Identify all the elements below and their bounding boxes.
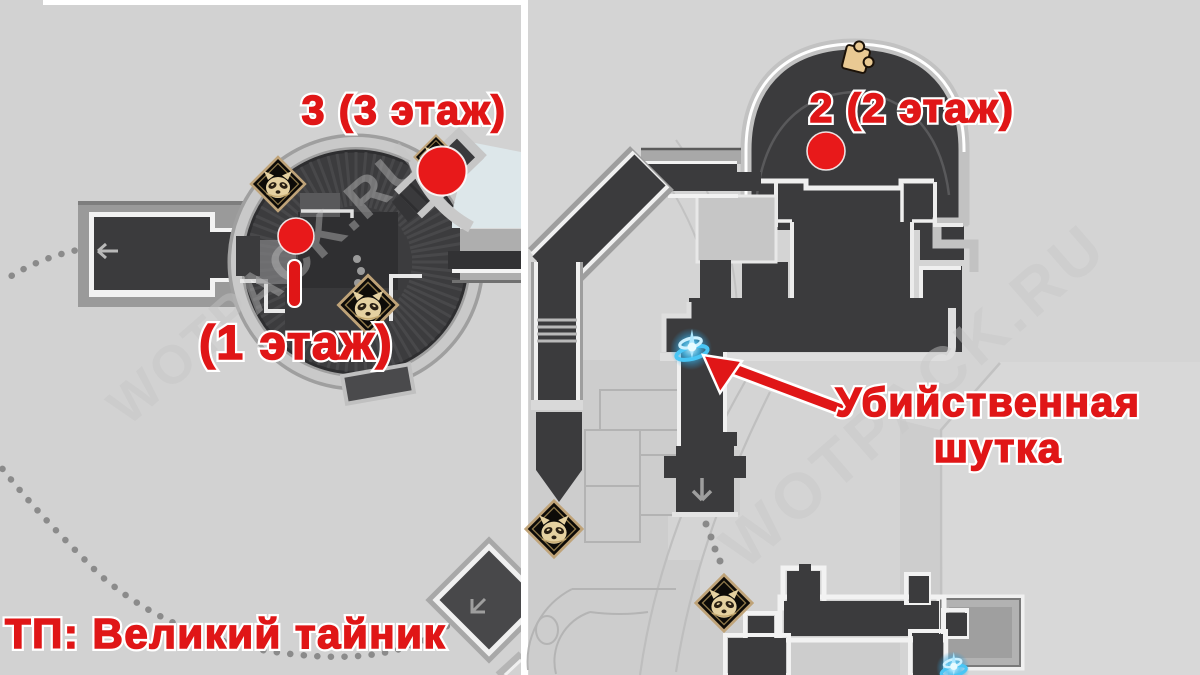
svg-text:шутка: шутка (934, 425, 1062, 471)
svg-text:ТП: Великий тайник: ТП: Великий тайник (5, 610, 446, 657)
svg-text:Убийственная: Убийственная (836, 379, 1141, 425)
svg-text:(1 этаж): (1 этаж) (199, 317, 393, 370)
svg-text:2 (2 этаж): 2 (2 этаж) (810, 85, 1015, 131)
svg-text:3 (3 этаж): 3 (3 этаж) (302, 87, 507, 133)
